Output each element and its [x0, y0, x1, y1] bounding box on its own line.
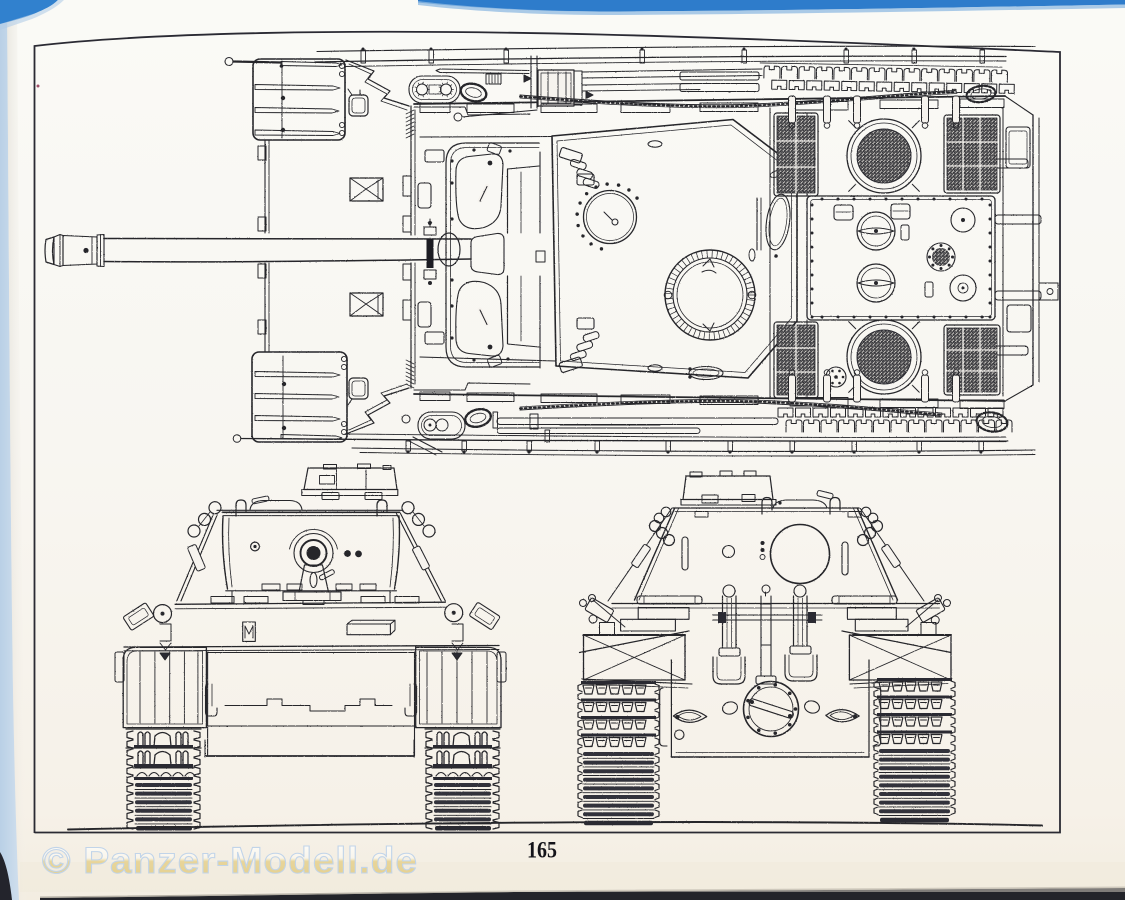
svg-text:© Panzer-Modell.de: © Panzer-Modell.de: [42, 840, 418, 881]
svg-text:165: 165: [527, 838, 557, 864]
